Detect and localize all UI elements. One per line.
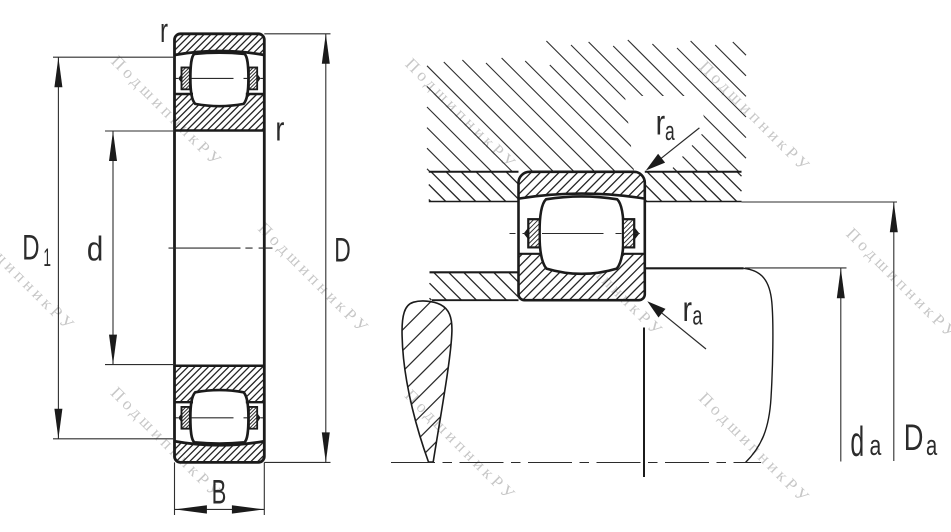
svg-text:r: r (275, 110, 284, 148)
svg-text:r: r (656, 103, 666, 142)
svg-text:a: a (870, 430, 882, 462)
svg-text:r: r (683, 290, 693, 329)
svg-text:D: D (334, 231, 351, 269)
svg-text:a: a (926, 430, 938, 462)
svg-text:B: B (212, 473, 227, 511)
svg-text:a: a (692, 301, 703, 331)
svg-text:r: r (160, 12, 168, 50)
svg-text:d: d (850, 418, 864, 465)
svg-text:a: a (665, 116, 675, 146)
svg-text:D: D (904, 417, 924, 458)
svg-text:1: 1 (43, 245, 51, 272)
svg-text:d: d (87, 230, 103, 268)
svg-text:D: D (22, 227, 39, 267)
